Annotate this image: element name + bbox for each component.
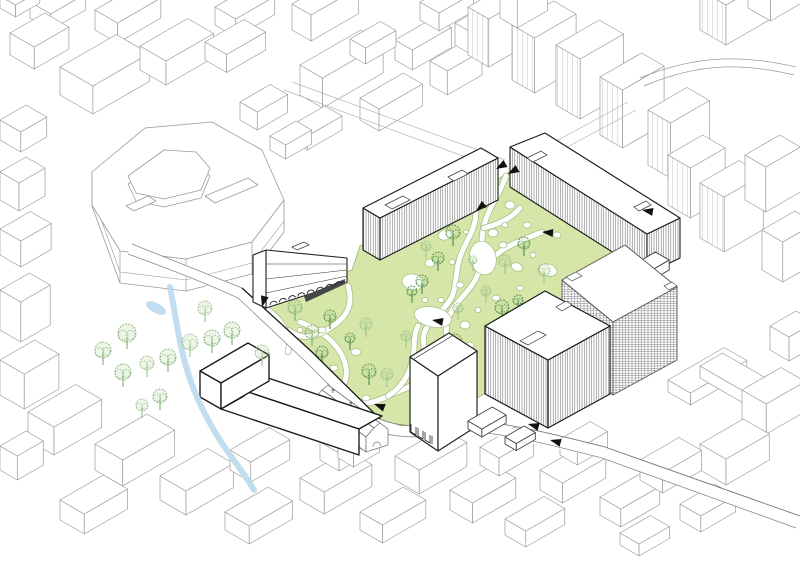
pond [144,298,168,317]
axonometric-site-plan-illustration [0,0,800,566]
park-clearing [502,223,508,228]
park-clearing [456,282,464,288]
park-clearing [351,349,361,356]
tree-canopy [118,324,136,342]
park-clearing [517,286,524,291]
site-plan-canvas [0,0,800,566]
tree [204,330,220,353]
park-clearing [422,298,428,303]
tree [198,301,212,322]
tree [115,364,131,387]
context-building [771,0,800,21]
park-clearing [488,229,498,237]
tree [224,322,240,345]
rooftop-box [292,242,309,250]
park-clearing [499,242,507,248]
curved-ramp-road [644,67,794,86]
park-clearing [553,232,561,238]
park-clearing [449,260,455,265]
park-clearing [297,328,303,333]
park-clearing [362,395,370,401]
park-clearing [438,298,444,303]
park-clearing [530,253,536,258]
park-clearing [492,295,500,301]
tree [153,389,167,410]
tree [140,356,154,377]
park-clearing [523,222,531,228]
context-building [700,0,726,45]
park-clearing [505,201,515,209]
tree [160,349,176,372]
tree [95,342,111,365]
park-clearing [460,321,470,329]
park-clearing [475,308,481,313]
tree [118,324,136,349]
park-clearing [464,230,469,234]
